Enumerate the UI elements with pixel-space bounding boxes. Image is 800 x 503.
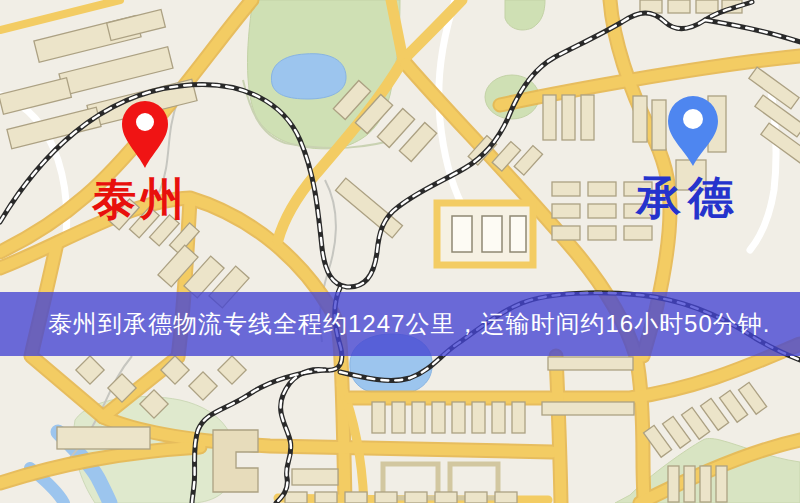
lake-top [271, 54, 346, 99]
road-bottom-vertical [556, 356, 561, 503]
compound-center [437, 203, 533, 265]
route-info-banner: 泰州到承德物流专线全程约1247公里，运输时间约16小时50分钟. [0, 292, 800, 356]
map-background [0, 0, 800, 503]
map-canvas: 泰州 承德 泰州到承德物流专线全程约1247公里，运输时间约16小时50分钟. [0, 0, 800, 503]
origin-pin-hole [136, 113, 154, 131]
route-info-text: 泰州到承德物流专线全程约1247公里，运输时间约16小时50分钟. [48, 308, 770, 340]
destination-pin-hole [683, 109, 703, 129]
